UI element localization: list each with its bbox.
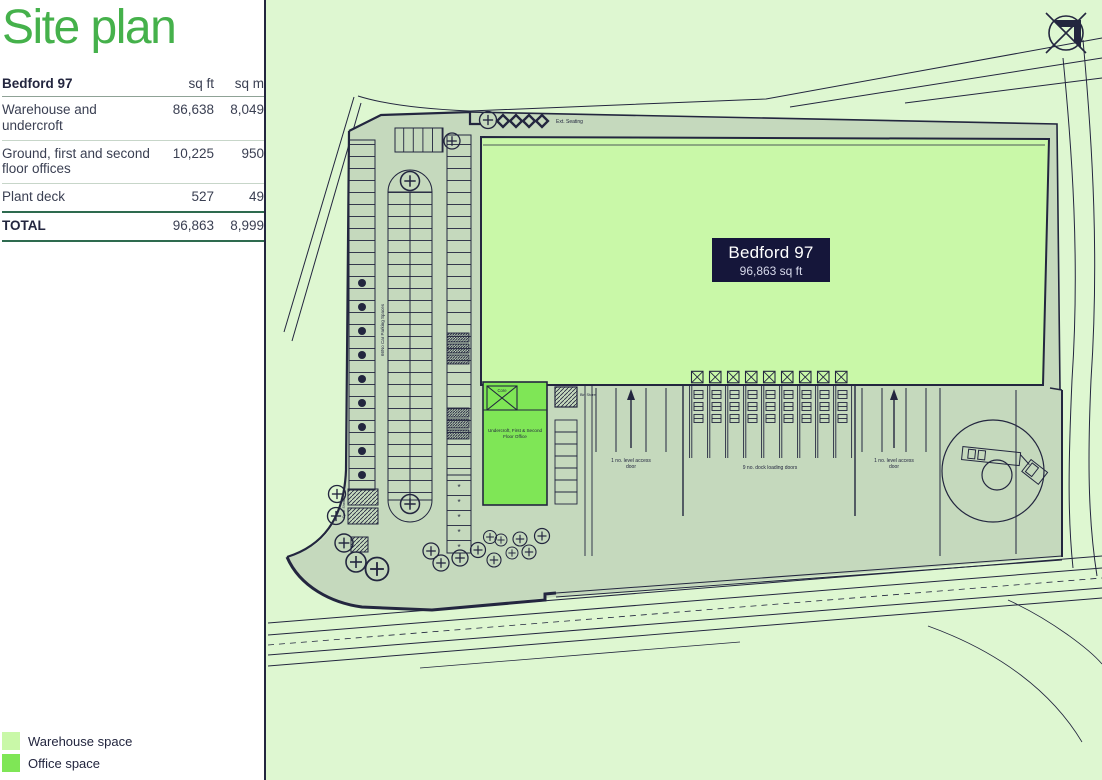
bin-store-label: Bin Store	[580, 393, 596, 397]
access-door-label-left: 1 no. level access door	[611, 458, 651, 478]
area-table: Bedford 97 sq ft sq m Warehouse and unde…	[2, 71, 264, 242]
table-header-row: Bedford 97 sq ft sq m	[2, 71, 264, 97]
ext-seating-label: Ext. Seating	[556, 119, 583, 125]
office-swatch	[2, 754, 20, 772]
access-door-label-right: 1 no. level access door	[874, 458, 914, 478]
page-title: Site plan	[2, 2, 264, 55]
dock-doors-label: 9 no. dock loading doors	[743, 465, 798, 471]
building-label: Bedford 97 96,863 sq ft	[712, 238, 830, 282]
table-col-sqm: sq m	[214, 76, 264, 91]
table-row: Warehouse and undercroft 86,638 8,049	[2, 97, 264, 141]
sidebar: Site plan Bedford 97 sq ft sq m Warehous…	[0, 0, 266, 780]
dock-doors	[690, 371, 851, 384]
building-name: Bedford 97	[728, 243, 813, 263]
table-col-sqft: sq ft	[156, 76, 214, 91]
core-label: Core	[497, 388, 507, 393]
warehouse-swatch	[2, 732, 20, 750]
svg-text:*: *	[457, 498, 460, 507]
legend-item-office: Office space	[2, 754, 132, 772]
svg-text:*: *	[457, 528, 460, 537]
table-total-row: TOTAL 96,863 8,999	[2, 211, 264, 242]
table-row: Ground, first and second floor offices 1…	[2, 141, 264, 185]
svg-text:*: *	[457, 483, 460, 492]
north-arrow-icon	[1046, 13, 1086, 53]
table-scheme-name: Bedford 97	[2, 76, 156, 92]
legend-item-warehouse: Warehouse space	[2, 732, 132, 750]
building-area: 96,863 sq ft	[740, 264, 803, 278]
ev-charging-markers	[358, 279, 366, 479]
legend: Warehouse space Office space	[2, 728, 132, 772]
office-label: Undercroft, First & Second Floor Office	[486, 428, 544, 462]
table-row: Plant deck 527 49	[2, 184, 264, 212]
parking-count-label: 66No Car Parking Spaces	[380, 303, 385, 356]
site-plan-drawing: Core Bin Store	[268, 0, 1102, 780]
dock-levelers	[689, 389, 851, 425]
svg-text:*: *	[457, 513, 460, 522]
site-plan-panel: Core Bin Store	[268, 0, 1102, 780]
